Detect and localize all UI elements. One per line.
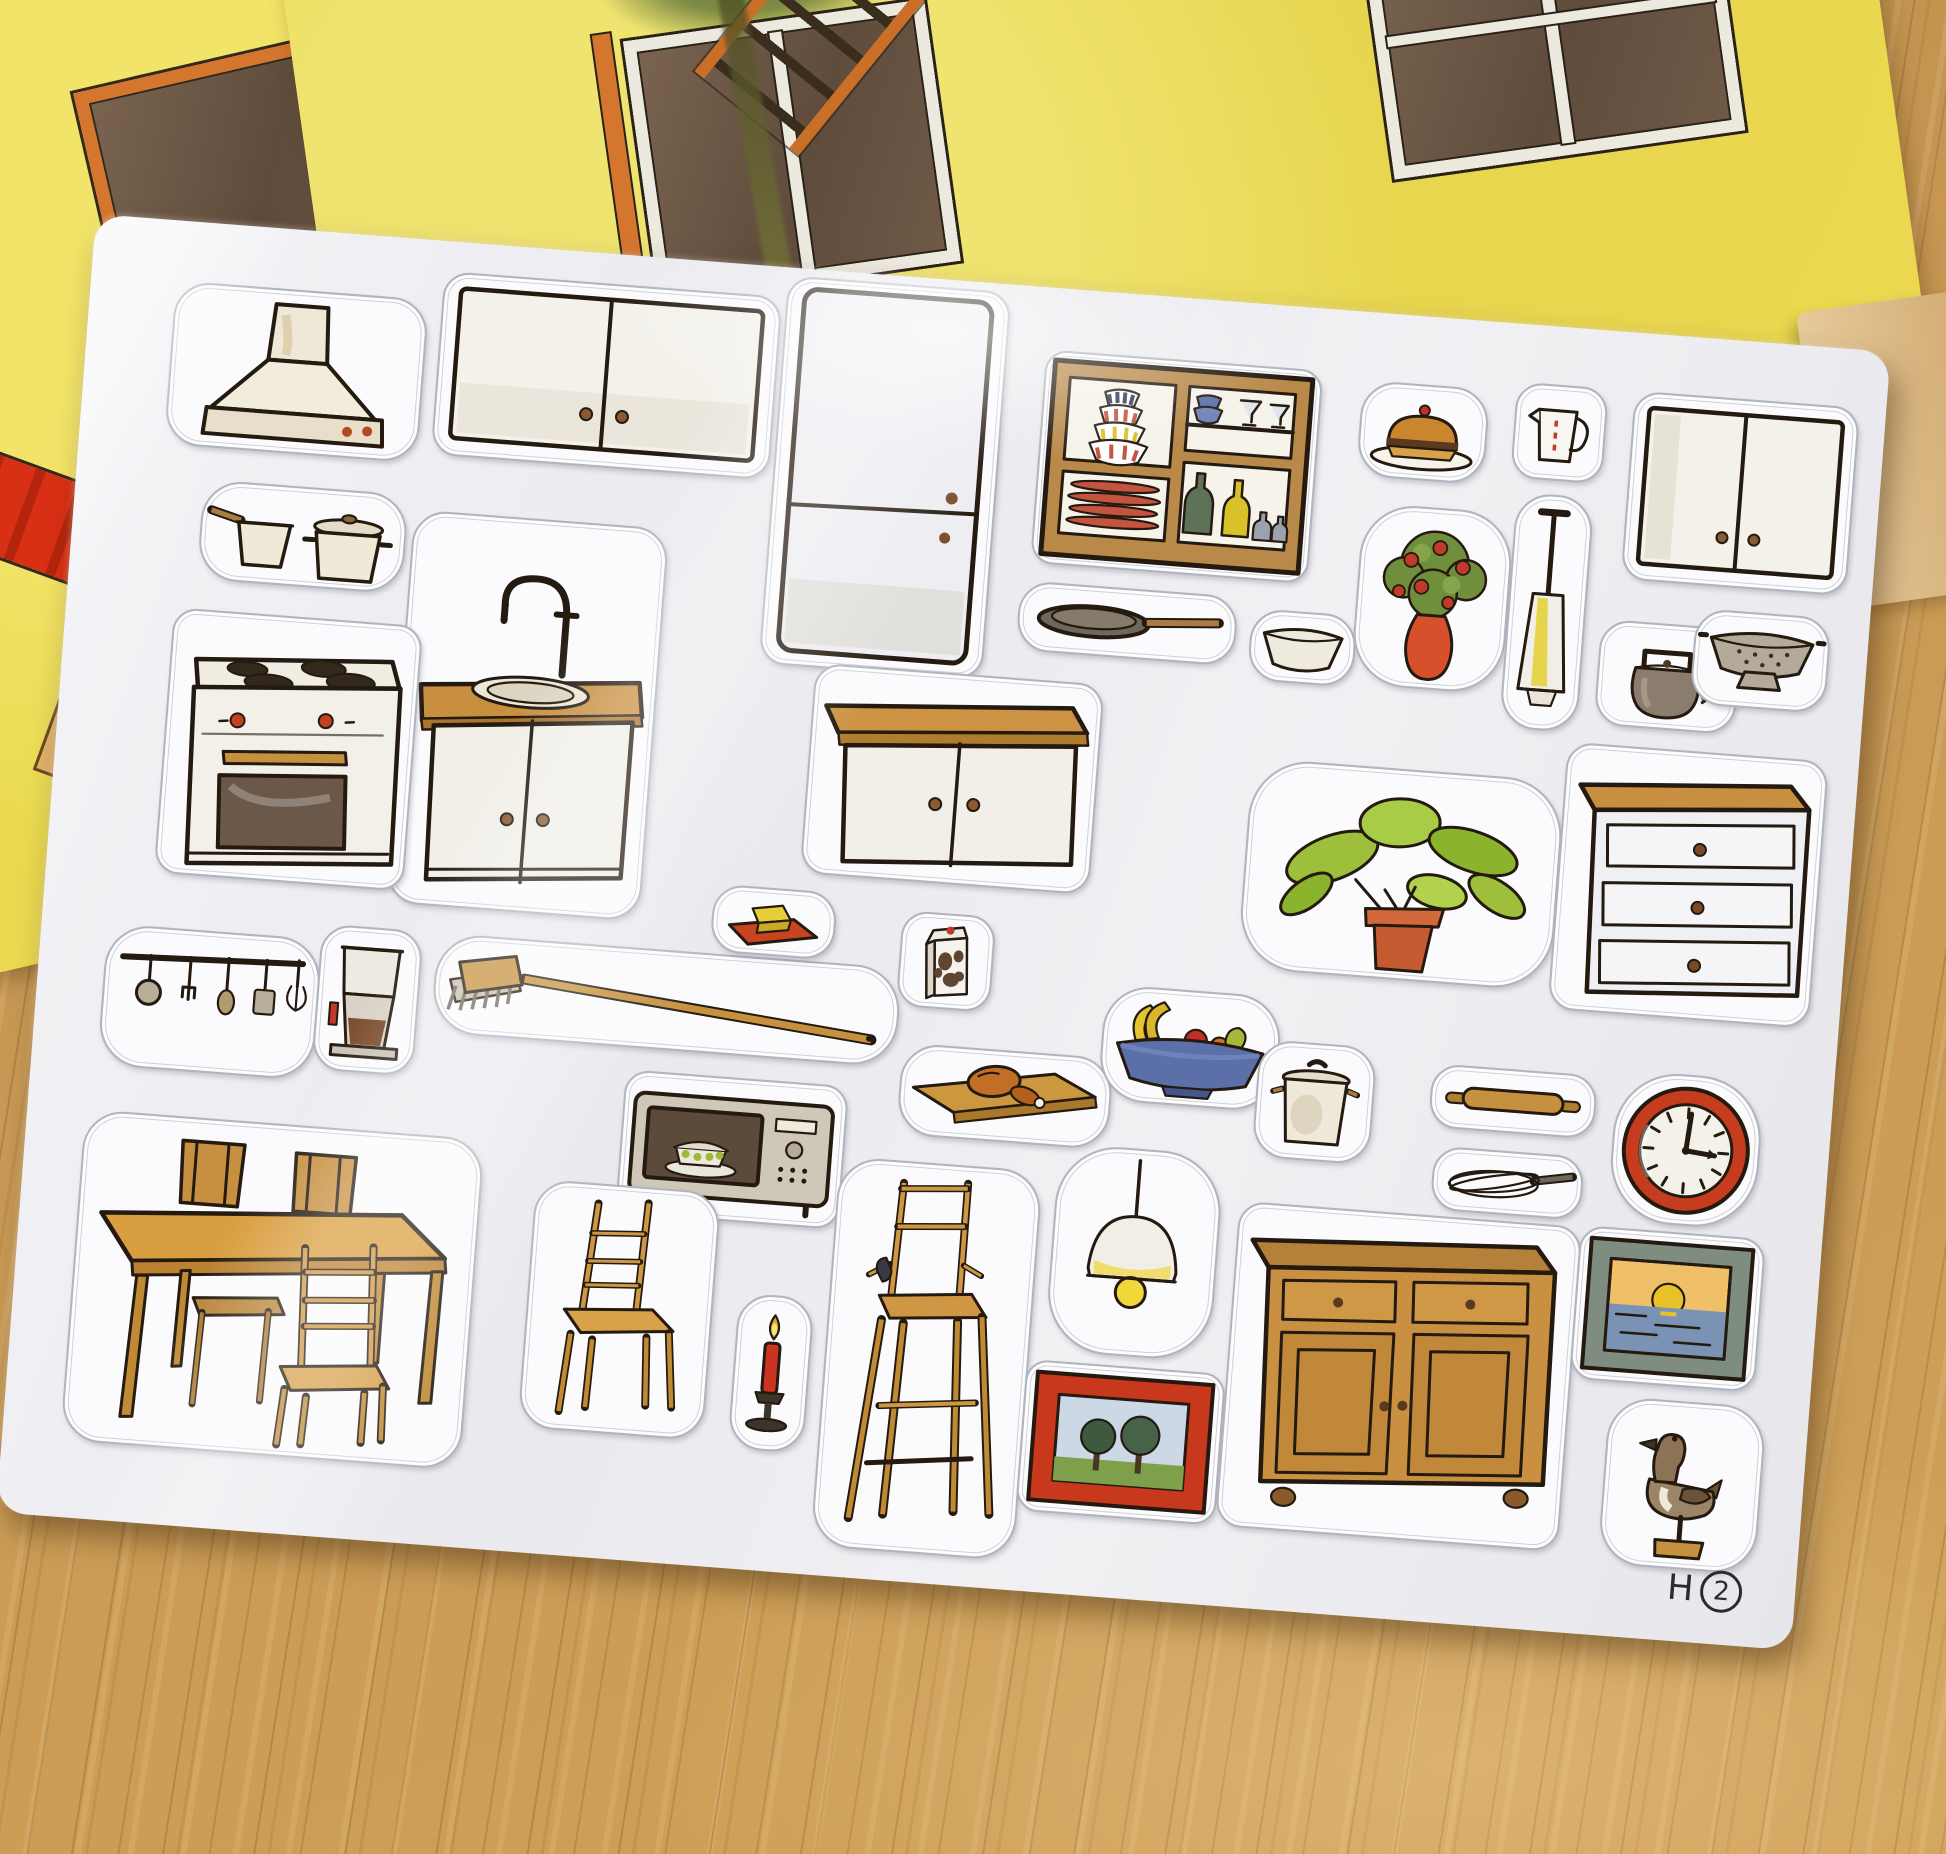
sticker-candle — [727, 1293, 815, 1454]
stove-illustration — [156, 609, 421, 889]
utensil-rail-illustration — [99, 925, 321, 1079]
sticker-whisk — [1430, 1145, 1585, 1220]
flower-vase-illustration — [1352, 504, 1513, 693]
duck-illustration — [1599, 1398, 1765, 1573]
sticker-chair — [517, 1179, 722, 1442]
sticker-refrigerator — [758, 275, 1011, 680]
sticker-wall-cabinet-right — [1620, 391, 1860, 597]
sticker-sideboard — [1215, 1201, 1583, 1552]
sticker-sink-cabinet — [384, 509, 669, 921]
milk-carton-illustration — [898, 912, 995, 1011]
cake-illustration — [1358, 382, 1489, 483]
hand-blender-illustration — [1501, 494, 1593, 731]
potted-plant-illustration — [1239, 759, 1564, 989]
candle-illustration — [729, 1295, 812, 1452]
sheet-code-letter: H — [1666, 1568, 1695, 1610]
bowl-illustration — [1249, 610, 1356, 686]
sticker-wall-cabinet-left — [431, 271, 783, 480]
sticker-dish-shelf — [1030, 349, 1324, 584]
high-chair-illustration — [812, 1158, 1041, 1559]
clock-illustration — [1608, 1071, 1763, 1229]
sticker-rolling-pin — [1428, 1063, 1598, 1140]
rolling-pin-illustration — [1430, 1065, 1596, 1137]
sticker-utensil-rail — [97, 923, 323, 1081]
sticker-butter-dish — [709, 883, 838, 960]
sticker-milk-carton — [896, 910, 997, 1013]
sticker-coffee-maker — [311, 923, 424, 1076]
refrigerator-illustration — [761, 277, 1010, 678]
picture-trees-illustration — [1017, 1361, 1224, 1524]
wall-cabinet-illustration — [433, 273, 781, 478]
range-hood-illustration — [166, 282, 428, 461]
measuring-jug-illustration — [1512, 384, 1607, 482]
frying-pan-illustration — [1017, 582, 1236, 664]
fruit-bowl-illustration — [1099, 986, 1281, 1111]
sink-cabinet-illustration — [386, 511, 667, 919]
sticker-duck-figurine — [1597, 1396, 1767, 1576]
sticker-potted-plant — [1237, 757, 1566, 991]
dresser-illustration — [1549, 744, 1826, 1027]
sticker-roast-on-board — [896, 1042, 1114, 1150]
sticker-wall-clock — [1606, 1069, 1765, 1231]
sticker-hand-blender — [1499, 492, 1595, 733]
sideboard-illustration — [1217, 1203, 1581, 1550]
dish-shelf-illustration — [1032, 351, 1321, 581]
chair-illustration — [519, 1181, 719, 1439]
sticker-sheet: H 2 — [0, 214, 1891, 1650]
sticker-flower-vase — [1350, 502, 1516, 695]
base-cabinet-illustration — [802, 665, 1103, 893]
sticker-cake-plate — [1356, 380, 1491, 486]
coffee-maker-illustration — [313, 926, 422, 1075]
sticker-mixing-bowl — [1247, 608, 1358, 688]
sticker-picture-trees — [1015, 1359, 1226, 1526]
sheet-code-number: 2 — [1699, 1569, 1744, 1614]
sticker-colander — [1689, 608, 1832, 714]
sticker-base-cabinet — [800, 663, 1105, 896]
sticker-picture-sunset — [1569, 1225, 1766, 1393]
sticker-cooking-pots — [196, 479, 409, 595]
sticker-frying-pan — [1015, 580, 1239, 667]
pots-illustration — [198, 481, 407, 592]
sticker-drawer-dresser — [1547, 741, 1829, 1028]
sticker-high-chair — [810, 1156, 1043, 1561]
stock-pot-illustration — [1253, 1041, 1375, 1163]
butter-illustration — [711, 886, 836, 959]
wall-cabinet-illustration — [1623, 393, 1859, 594]
sticker-measuring-jug — [1510, 382, 1609, 485]
house-window-icon — [1357, 0, 1746, 179]
colander-illustration — [1691, 610, 1830, 712]
roast-illustration — [898, 1044, 1112, 1148]
picture-sunset-illustration — [1571, 1227, 1764, 1391]
sticker-dining-table — [60, 1109, 485, 1471]
sticker-range-hood — [164, 280, 430, 463]
sticker-pendant-lamp — [1044, 1143, 1225, 1363]
dining-table-illustration — [62, 1111, 483, 1468]
pendant-lamp-illustration — [1046, 1145, 1223, 1361]
sticker-broom — [430, 932, 902, 1067]
sticker-stove — [154, 607, 424, 891]
sticker-stock-pot — [1251, 1039, 1378, 1166]
sheet-code-label: H 2 — [1666, 1567, 1744, 1615]
whisk-illustration — [1432, 1148, 1583, 1219]
